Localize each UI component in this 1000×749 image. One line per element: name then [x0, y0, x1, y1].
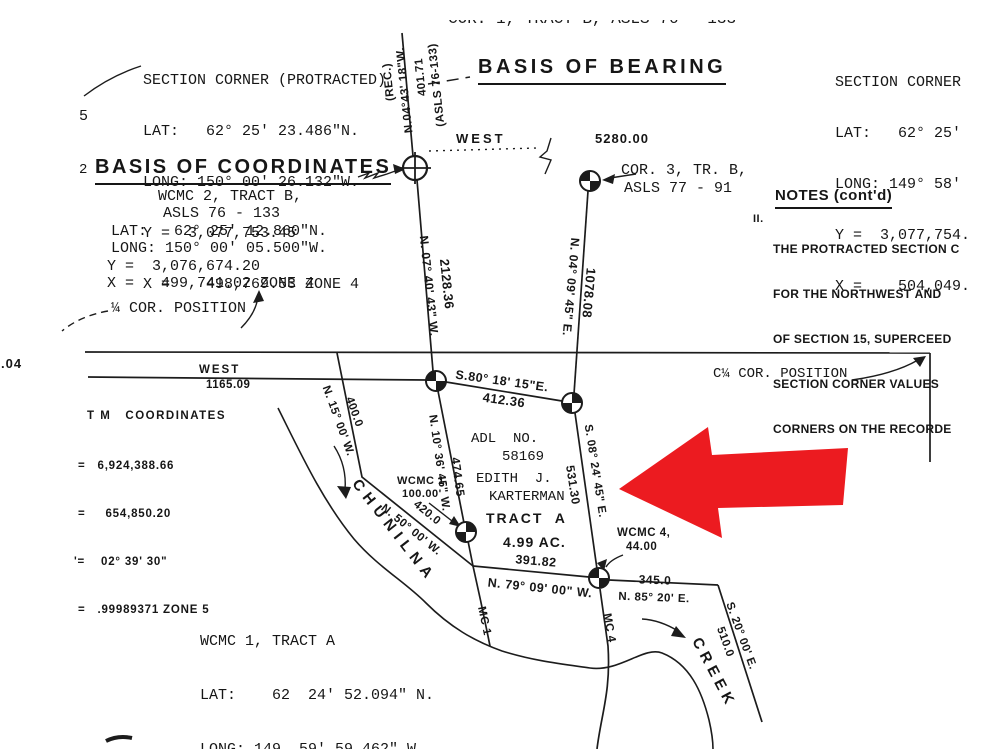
- lat-value: LAT: 62° 25' 12.860"N.: [111, 223, 327, 240]
- label-distance-345: 345.0: [639, 572, 672, 587]
- leader-top-left: [84, 66, 141, 96]
- block-wcmc1-tract-a: WCMC 1, TRACT A LAT: 62 24' 52.094" N. L…: [200, 597, 434, 749]
- tm-line: = 6,924,388.66: [74, 458, 209, 474]
- cor3-line2: ASLS 77 - 91: [624, 180, 732, 197]
- leader-quarter-cor: [62, 311, 108, 331]
- creek-flow-arrow-line-2: [642, 619, 678, 631]
- label-west-1165-dist: 1165.09: [206, 379, 250, 391]
- label-west-5280-dist: 5280.00: [595, 131, 649, 146]
- leader-wcmc4: [606, 555, 623, 567]
- basis-of-coordinates-heading: BASIS OF COORDINATES: [95, 156, 391, 185]
- scan-mark-bottom: [106, 737, 132, 741]
- block-title: WCMC 1, TRACT A: [200, 633, 434, 651]
- monument-ne-corner: [562, 393, 582, 413]
- wcmc1-tag-line2: 100.00': [402, 488, 442, 500]
- long-value: LONG: 149 59' 59.462" W.: [200, 741, 434, 749]
- tract-a-label: TRACT A: [486, 510, 567, 526]
- notes-heading: NOTES (cont'd): [775, 187, 892, 209]
- cor1-caption-clipped: COR. 1, TRACT B, ASLS 76 - 133: [448, 20, 778, 41]
- y-value: Y = 3,076,674.20: [107, 258, 260, 275]
- notes-body: THE PROTRACTED SECTION C FOR THE NORTHWE…: [773, 212, 960, 467]
- monument-wcmc1: [456, 522, 476, 542]
- tm-line: = .99989371 ZONE 5: [74, 602, 209, 618]
- x-value: X = 499,741.02 ZONE 4: [107, 275, 314, 292]
- monument-nw-corner: [426, 371, 446, 391]
- wcmc4-tag-line1: WCMC 4,: [617, 527, 670, 539]
- owner-name-line1: EDITH J.: [476, 471, 552, 487]
- notes-line: FOR THE NORTHWEST AND: [773, 287, 960, 302]
- lat-value: LAT: 62 24' 52.094" N.: [200, 687, 434, 705]
- wcmc4-tag-line2: 44.00: [626, 541, 657, 553]
- monument-wcmc4: [589, 568, 609, 588]
- edge-fragment-two: 2: [79, 162, 87, 178]
- long-value: LONG: 150° 00' 05.500"W.: [111, 240, 327, 257]
- label-bearing-n8520: N. 85° 20' E.: [618, 591, 690, 605]
- tm-line: = 654,850.20: [74, 506, 209, 522]
- notes-item-marker: II.: [753, 213, 764, 225]
- c-quarter-cor-position-label: C¼ COR. POSITION: [713, 366, 847, 382]
- label-west-5280-dir: WEST: [456, 131, 506, 146]
- monument-cor3: [580, 171, 600, 191]
- notes-line: OF SECTION 15, SUPERCEED: [773, 332, 960, 347]
- survey-plat-scan: COR. 1, TRACT B, ASLS 76 - 133 BASIS OF …: [0, 0, 1000, 749]
- notes-line: THE PROTRACTED SECTION C: [773, 242, 960, 257]
- edge-fragment-04: .04: [1, 356, 22, 371]
- tm-coordinates-body: = 6,924,388.66 = 654,850.20 '= 02° 39' 3…: [74, 426, 209, 650]
- wcmc2-label: WCMC 2, TRACT B,: [158, 188, 302, 205]
- basis-of-bearing-heading: BASIS OF BEARING: [478, 56, 726, 85]
- edge-fragment-five: 5: [79, 108, 88, 125]
- cor1-caption: COR. 1, TRACT B, ASLS 76 - 133: [448, 20, 778, 28]
- notes-line: CORNERS ON THE RECORDE: [773, 422, 960, 437]
- block-title: SECTION CORNER: [835, 74, 970, 91]
- adl-number-label: ADL NO.: [471, 431, 538, 447]
- asls-label: ASLS 76 - 133: [163, 205, 280, 222]
- tm-line: '= 02° 39' 30": [74, 554, 209, 570]
- cor3-line1: COR. 3, TR. B,: [621, 162, 747, 179]
- owner-name-line2: KARTERMAN: [489, 489, 565, 505]
- label-west-1165-dir: WEST: [199, 364, 240, 376]
- adl-number-value: 58169: [502, 449, 544, 465]
- quarter-cor-position-label: ¼ COR. POSITION: [111, 300, 246, 317]
- line-break-squiggle: [540, 138, 551, 174]
- wcmc1-tag-line1: WCMC 1,: [397, 475, 448, 487]
- lat-value: LAT: 62° 25': [835, 125, 970, 142]
- arrowhead-cor3: [602, 174, 615, 184]
- lat-value: LAT: 62° 25' 23.486"N.: [143, 123, 386, 140]
- monument-crosshair-basis: [399, 152, 431, 184]
- block-title: SECTION CORNER (PROTRACTED): [143, 72, 386, 89]
- acreage-label: 4.99 AC.: [503, 534, 566, 550]
- tm-coordinates-title: T M COORDINATES: [87, 410, 226, 422]
